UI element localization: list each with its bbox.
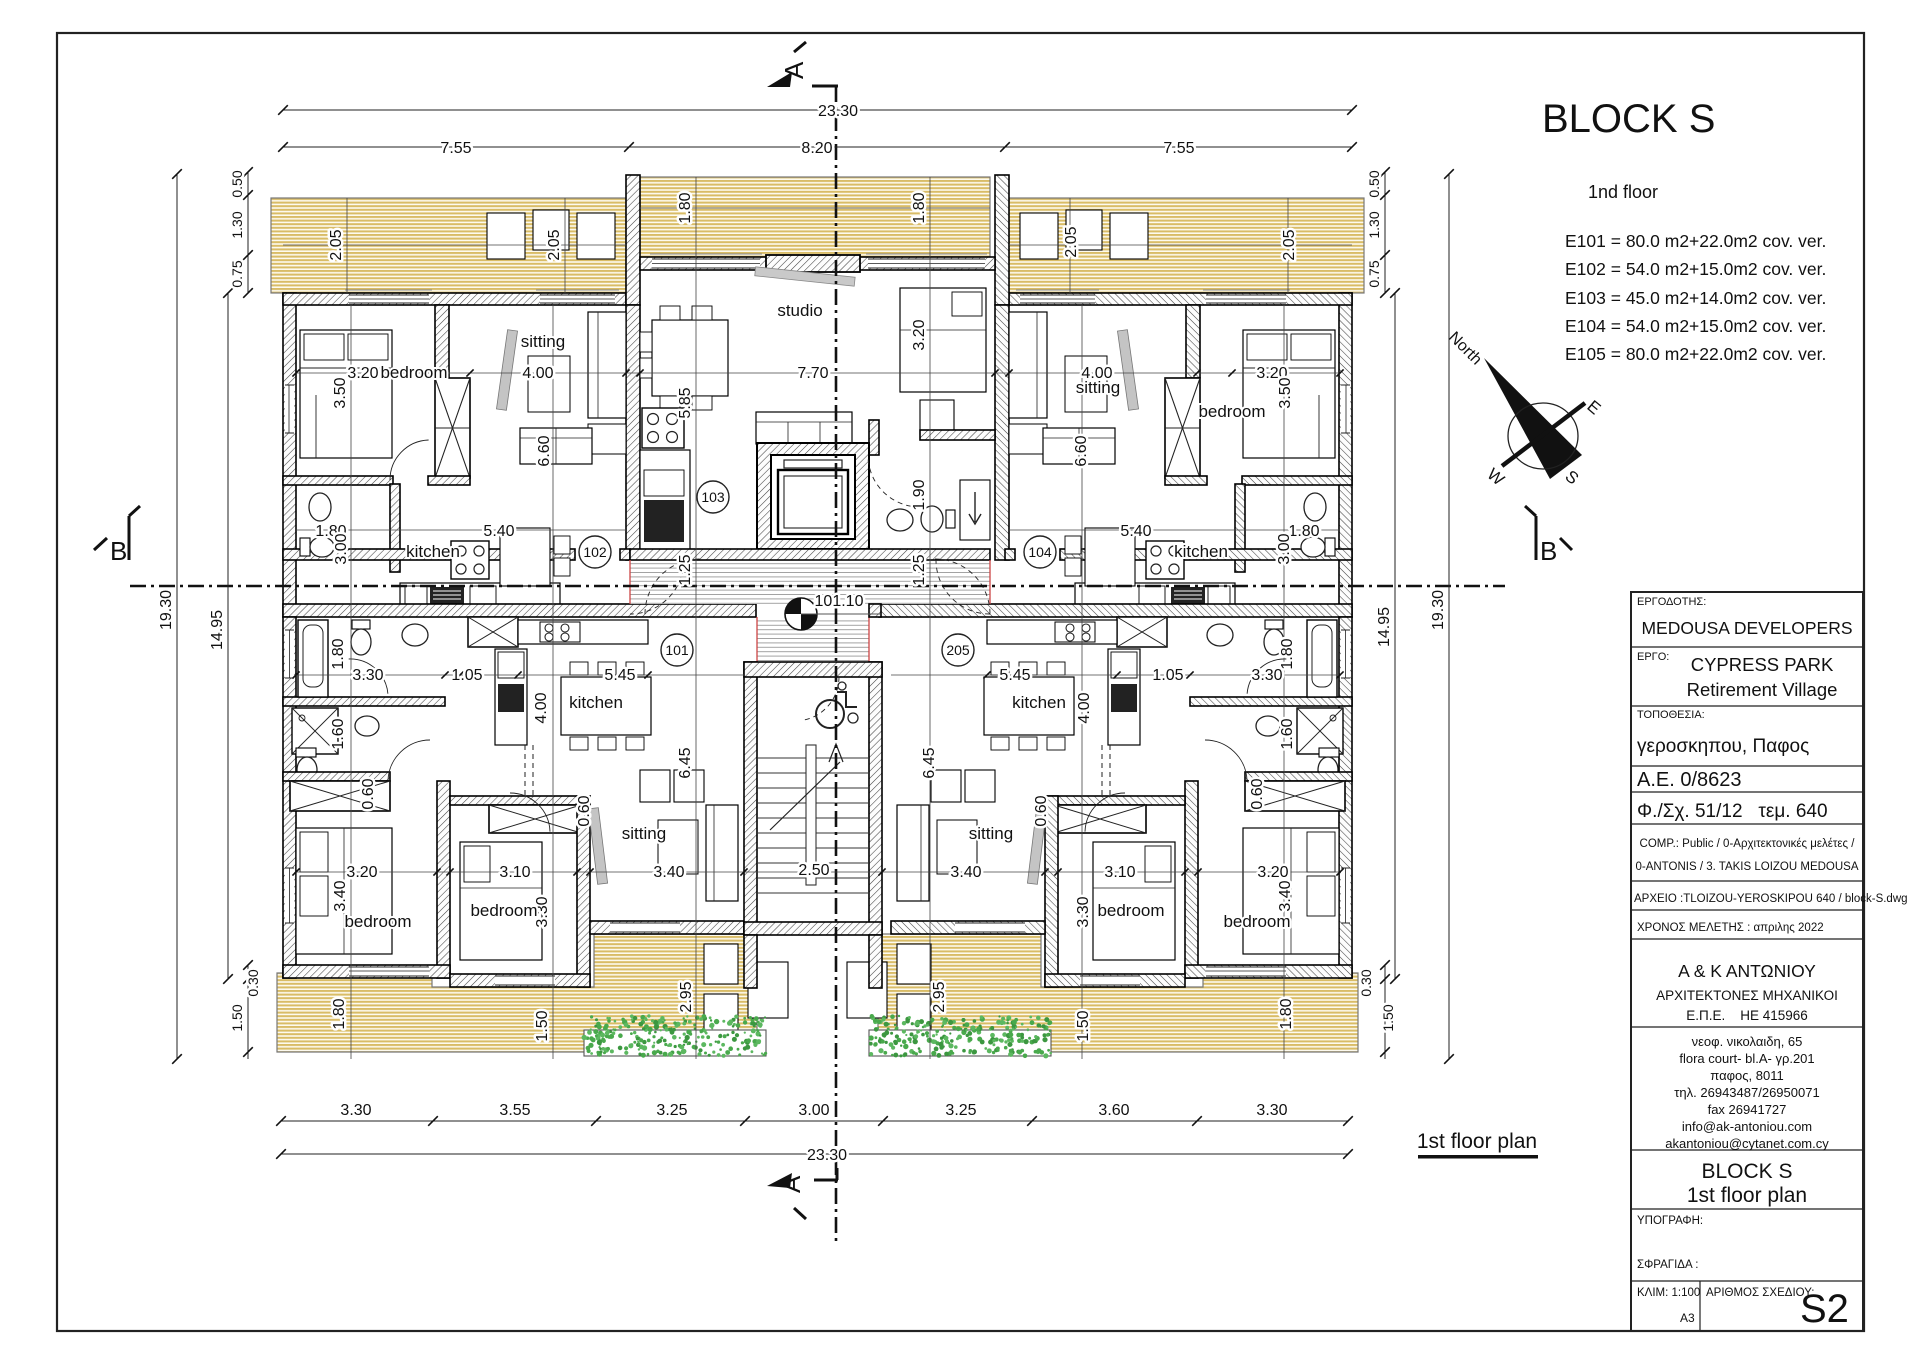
svg-text:101: 101 <box>665 642 689 658</box>
svg-text:1.50: 1.50 <box>534 1010 551 1041</box>
svg-text:3.40: 3.40 <box>950 864 981 881</box>
svg-text:1.60: 1.60 <box>330 718 347 749</box>
svg-text:Ε.Π.Ε. ΗΕ 415966: Ε.Π.Ε. ΗΕ 415966 <box>1686 1008 1808 1023</box>
svg-text:3.00: 3.00 <box>333 533 350 564</box>
svg-text:ΕΡΓΟΔΟΤΗΣ:: ΕΡΓΟΔΟΤΗΣ: <box>1637 596 1706 608</box>
svg-text:2.50: 2.50 <box>798 862 829 879</box>
svg-text:Φ./Σχ. 51/12 τεμ. 640: Φ./Σχ. 51/12 τεμ. 640 <box>1637 801 1828 822</box>
svg-text:E101 = 80.0 m2+22.0m2 cov. ver: E101 = 80.0 m2+22.0m2 cov. ver. <box>1565 231 1826 251</box>
svg-text:1nd floor: 1nd floor <box>1588 182 1658 202</box>
svg-text:6.45: 6.45 <box>921 747 938 778</box>
svg-text:akantoniou@cytanet.com.cy: akantoniou@cytanet.com.cy <box>1665 1136 1829 1151</box>
svg-text:ΑΡΧΙΤΕΚΤΟΝΕΣ ΜΗΧΑΝΙΚΟΙ: ΑΡΧΙΤΕΚΤΟΝΕΣ ΜΗΧΑΝΙΚΟΙ <box>1656 988 1838 1003</box>
svg-text:kitchen: kitchen <box>1012 693 1066 712</box>
svg-text:1.50: 1.50 <box>1380 1004 1396 1031</box>
svg-text:3.20: 3.20 <box>911 319 928 350</box>
svg-text:5.40: 5.40 <box>483 523 514 540</box>
svg-text:MEDOUSA DEVELOPERS: MEDOUSA DEVELOPERS <box>1641 618 1852 638</box>
svg-text:5.85: 5.85 <box>677 387 694 418</box>
svg-text:1.25: 1.25 <box>911 554 928 585</box>
svg-text:6.45: 6.45 <box>677 747 694 778</box>
svg-text:παφος, 8011: παφος, 8011 <box>1710 1068 1783 1083</box>
svg-text:1.60: 1.60 <box>1279 718 1296 749</box>
svg-text:101.10: 101.10 <box>815 593 864 610</box>
svg-text:14.95: 14.95 <box>1376 607 1393 647</box>
svg-text:3.30: 3.30 <box>340 1102 371 1119</box>
svg-text:3.10: 3.10 <box>1104 864 1135 881</box>
svg-text:sitting: sitting <box>521 332 565 351</box>
svg-text:Α & Κ ΑΝΤΩΝΙΟΥ: Α & Κ ΑΝΤΩΝΙΟΥ <box>1678 961 1816 981</box>
svg-text:3.25: 3.25 <box>656 1102 687 1119</box>
svg-text:kitchen: kitchen <box>569 693 623 712</box>
svg-text:2.95: 2.95 <box>931 981 948 1012</box>
svg-text:ΧΡΟΝΟΣ ΜΕΛΕΤΗΣ : απριλης 202: ΧΡΟΝΟΣ ΜΕΛΕΤΗΣ : απριλης 2022 <box>1637 922 1824 934</box>
svg-text:sitting: sitting <box>622 824 666 843</box>
svg-text:3.40: 3.40 <box>332 880 349 911</box>
svg-text:0-ANTONIS / 3. TAKIS LOIZOU ME: 0-ANTONIS / 3. TAKIS LOIZOU MEDOUSA <box>1635 861 1858 873</box>
svg-text:3.50: 3.50 <box>332 377 349 408</box>
svg-text:3.00: 3.00 <box>798 1102 829 1119</box>
svg-text:ΚΛΙΜ: 1:100: ΚΛΙΜ: 1:100 <box>1637 1287 1700 1299</box>
svg-text:Retirement Village: Retirement Village <box>1687 679 1838 700</box>
svg-text:19.30: 19.30 <box>158 590 175 630</box>
svg-text:1st floor plan: 1st floor plan <box>1417 1130 1537 1153</box>
svg-text:3.55: 3.55 <box>499 1102 530 1119</box>
svg-text:CYPRESS PARK: CYPRESS PARK <box>1691 654 1834 675</box>
svg-text:sitting: sitting <box>1076 378 1120 397</box>
svg-text:0.60: 0.60 <box>576 795 593 826</box>
svg-text:1.25: 1.25 <box>677 554 694 585</box>
svg-text:1.80: 1.80 <box>1279 638 1296 669</box>
svg-text:0.50: 0.50 <box>229 170 245 197</box>
svg-text:0.75: 0.75 <box>229 260 245 287</box>
svg-text:E103 = 45.0 m2+14.0m2 cov. ver: E103 = 45.0 m2+14.0m2 cov. ver. <box>1565 288 1826 308</box>
svg-text:3.40: 3.40 <box>1277 880 1294 911</box>
svg-text:102: 102 <box>583 544 607 560</box>
svg-text:bedroom: bedroom <box>380 363 447 382</box>
svg-text:19.30: 19.30 <box>1430 590 1447 630</box>
svg-text:5.45: 5.45 <box>999 667 1030 684</box>
svg-text:1.80: 1.80 <box>1278 998 1295 1029</box>
svg-text:3.25: 3.25 <box>945 1102 976 1119</box>
svg-text:ΣΦΡΑΓΙΔΑ :: ΣΦΡΑΓΙΔΑ : <box>1637 1259 1698 1271</box>
svg-text:kitchen: kitchen <box>406 542 460 561</box>
svg-text:bedroom: bedroom <box>344 912 411 931</box>
svg-text:ΥΠΟΓΡΑΦΗ:: ΥΠΟΓΡΑΦΗ: <box>1637 1215 1703 1227</box>
svg-text:4.00: 4.00 <box>522 365 553 382</box>
svg-text:2.05: 2.05 <box>1063 226 1080 257</box>
svg-text:7.70: 7.70 <box>797 365 828 382</box>
svg-text:E102 = 54.0 m2+15.0m2 cov. ver: E102 = 54.0 m2+15.0m2 cov. ver. <box>1565 259 1826 279</box>
svg-text:1.50: 1.50 <box>1075 1010 1092 1041</box>
svg-text:Α.Ε. 0/8623: Α.Ε. 0/8623 <box>1637 769 1742 791</box>
svg-text:4.00: 4.00 <box>533 692 550 723</box>
svg-text:3.20: 3.20 <box>346 864 377 881</box>
svg-text:ΕΡΓΟ:: ΕΡΓΟ: <box>1637 651 1669 663</box>
svg-text:A3: A3 <box>1680 1311 1695 1325</box>
svg-text:1.80: 1.80 <box>677 192 694 223</box>
svg-text:3.30: 3.30 <box>1256 1102 1287 1119</box>
svg-text:flora court- bl.A- γρ.201: flora court- bl.A- γρ.201 <box>1679 1051 1814 1066</box>
svg-text:3.20: 3.20 <box>347 365 378 382</box>
svg-text:ΑΡΧΕΙΟ :TLOIZOU-YEROSKIPOU 640: ΑΡΧΕΙΟ :TLOIZOU-YEROSKIPOU 640 / block-S… <box>1634 893 1908 905</box>
svg-text:6.60: 6.60 <box>536 435 553 466</box>
svg-text:103: 103 <box>701 489 725 505</box>
svg-text:1.80: 1.80 <box>330 638 347 669</box>
svg-text:1.05: 1.05 <box>451 667 482 684</box>
svg-text:kitchen: kitchen <box>1174 542 1228 561</box>
svg-text:6.60: 6.60 <box>1073 435 1090 466</box>
svg-text:3.40: 3.40 <box>653 864 684 881</box>
svg-text:γεροσκηπου, Παφος: γεροσκηπου, Παφος <box>1637 736 1809 757</box>
svg-text:1.05: 1.05 <box>1152 667 1183 684</box>
svg-text:τηλ. 26943487/26950071: τηλ. 26943487/26950071 <box>1674 1085 1819 1100</box>
svg-text:bedroom: bedroom <box>1223 912 1290 931</box>
svg-text:3.00: 3.00 <box>1276 533 1293 564</box>
svg-text:COMP.: Public / 0-Αρχιτεκτονικ: COMP.: Public / 0-Αρχιτεκτονικές μελέτες… <box>1640 838 1856 850</box>
svg-text:1st floor plan: 1st floor plan <box>1687 1184 1807 1207</box>
svg-text:bedroom: bedroom <box>470 901 537 920</box>
svg-text:E104 = 54.0 m2+15.0m2 cov. ver: E104 = 54.0 m2+15.0m2 cov. ver. <box>1565 316 1826 336</box>
svg-text:1.80: 1.80 <box>331 998 348 1029</box>
svg-text:3.60: 3.60 <box>1098 1102 1129 1119</box>
svg-text:νεοφ. νικολαιδη, 65: νεοφ. νικολαιδη, 65 <box>1692 1034 1803 1049</box>
svg-text:1.80: 1.80 <box>1288 523 1319 540</box>
svg-text:23.30: 23.30 <box>807 1147 847 1164</box>
svg-text:B: B <box>1540 536 1557 566</box>
svg-text:ΤΟΠΟΘΕΣΙΑ:: ΤΟΠΟΘΕΣΙΑ: <box>1637 709 1705 721</box>
svg-text:S2: S2 <box>1800 1287 1849 1331</box>
svg-text:3.50: 3.50 <box>1277 377 1294 408</box>
svg-text:fax 26941727: fax 26941727 <box>1708 1102 1787 1117</box>
svg-text:ΑΡΙΘΜΟΣ ΣΧΕΔΙΟΥ:: ΑΡΙΘΜΟΣ ΣΧΕΔΙΟΥ: <box>1706 1287 1814 1299</box>
svg-text:104: 104 <box>1028 544 1052 560</box>
svg-text:1.90: 1.90 <box>911 479 928 510</box>
svg-text:3.30: 3.30 <box>352 667 383 684</box>
svg-text:3.30: 3.30 <box>1251 667 1282 684</box>
svg-text:1.30: 1.30 <box>1366 211 1382 238</box>
svg-text:2.05: 2.05 <box>1281 229 1298 260</box>
svg-text:23.30: 23.30 <box>818 103 858 120</box>
svg-text:1.30: 1.30 <box>229 211 245 238</box>
svg-text:A: A <box>776 1175 806 1193</box>
svg-text:205: 205 <box>946 642 970 658</box>
svg-text:A: A <box>779 61 809 79</box>
svg-text:0.50: 0.50 <box>1366 170 1382 197</box>
svg-text:14.95: 14.95 <box>209 610 226 650</box>
svg-text:BLOCK S: BLOCK S <box>1701 1160 1792 1183</box>
svg-text:5.40: 5.40 <box>1120 523 1151 540</box>
svg-text:3.30: 3.30 <box>1075 896 1092 927</box>
svg-text:8.20: 8.20 <box>801 140 832 157</box>
svg-text:4.00: 4.00 <box>1076 692 1093 723</box>
svg-text:3.20: 3.20 <box>1257 864 1288 881</box>
svg-text:E105 = 80.0 m2+22.0m2 cov. ver: E105 = 80.0 m2+22.0m2 cov. ver. <box>1565 344 1826 364</box>
svg-text:1.80: 1.80 <box>911 192 928 223</box>
svg-text:bedroom: bedroom <box>1097 901 1164 920</box>
svg-text:bedroom: bedroom <box>1198 402 1265 421</box>
svg-text:0.60: 0.60 <box>1033 795 1050 826</box>
svg-text:3.10: 3.10 <box>499 864 530 881</box>
svg-text:5.45: 5.45 <box>604 667 635 684</box>
svg-text:sitting: sitting <box>969 824 1013 843</box>
svg-text:0.75: 0.75 <box>1366 260 1382 287</box>
svg-text:B: B <box>110 536 127 566</box>
svg-text:studio: studio <box>777 301 822 320</box>
svg-text:0.60: 0.60 <box>360 778 377 809</box>
svg-text:7.55: 7.55 <box>440 140 471 157</box>
svg-text:2.05: 2.05 <box>546 229 563 260</box>
svg-text:1.50: 1.50 <box>229 1004 245 1031</box>
svg-text:0.30: 0.30 <box>1358 969 1374 996</box>
svg-text:0.60: 0.60 <box>1249 778 1266 809</box>
svg-text:BLOCK S: BLOCK S <box>1542 97 1715 141</box>
svg-text:7.55: 7.55 <box>1163 140 1194 157</box>
svg-text:2.05: 2.05 <box>328 229 345 260</box>
svg-text:2.95: 2.95 <box>678 981 695 1012</box>
svg-text:0.30: 0.30 <box>245 969 261 996</box>
svg-text:info@ak-antoniou.com: info@ak-antoniou.com <box>1682 1119 1812 1134</box>
